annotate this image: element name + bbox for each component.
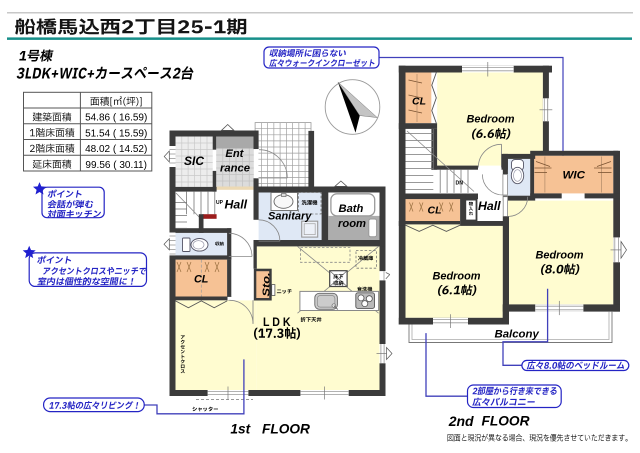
svg-text:FLOOR: FLOOR: [482, 413, 531, 429]
svg-text:FLOOR: FLOOR: [262, 421, 310, 436]
svg-text:Sto.: Sto.: [262, 273, 273, 297]
svg-text:Sanitary: Sanitary: [268, 210, 312, 222]
svg-text:54.86 ( 16.59): 54.86 ( 16.59): [85, 113, 147, 124]
svg-text:1st: 1st: [230, 422, 251, 437]
svg-text:UP: UP: [216, 200, 224, 206]
svg-text:Bedroom: Bedroom: [467, 114, 515, 126]
svg-text:CL: CL: [412, 95, 426, 107]
svg-text:WIC: WIC: [563, 169, 586, 181]
svg-text:Bedroom: Bedroom: [433, 270, 481, 282]
svg-text:CL: CL: [194, 273, 208, 285]
svg-text:2nd: 2nd: [448, 413, 474, 429]
svg-text:Ent: Ent: [225, 148, 244, 160]
svg-text:51.54 ( 15.59): 51.54 ( 15.59): [85, 128, 147, 139]
svg-text:rance: rance: [220, 162, 250, 174]
svg-text:48.02 ( 14.52): 48.02 ( 14.52): [85, 144, 147, 155]
svg-text:DN: DN: [456, 181, 464, 187]
svg-text:L D K: L D K: [263, 315, 291, 329]
svg-text:room: room: [338, 218, 366, 230]
svg-text:SIC: SIC: [184, 156, 205, 168]
svg-text:99.56 ( 30.11): 99.56 ( 30.11): [85, 160, 147, 171]
svg-text:Bedroom: Bedroom: [536, 249, 584, 261]
svg-text:Hall: Hall: [478, 199, 501, 213]
svg-text:CL: CL: [428, 205, 442, 217]
svg-text:Hall: Hall: [225, 197, 248, 211]
svg-text:Bath: Bath: [339, 203, 364, 215]
svg-text:Balcony: Balcony: [495, 329, 540, 341]
